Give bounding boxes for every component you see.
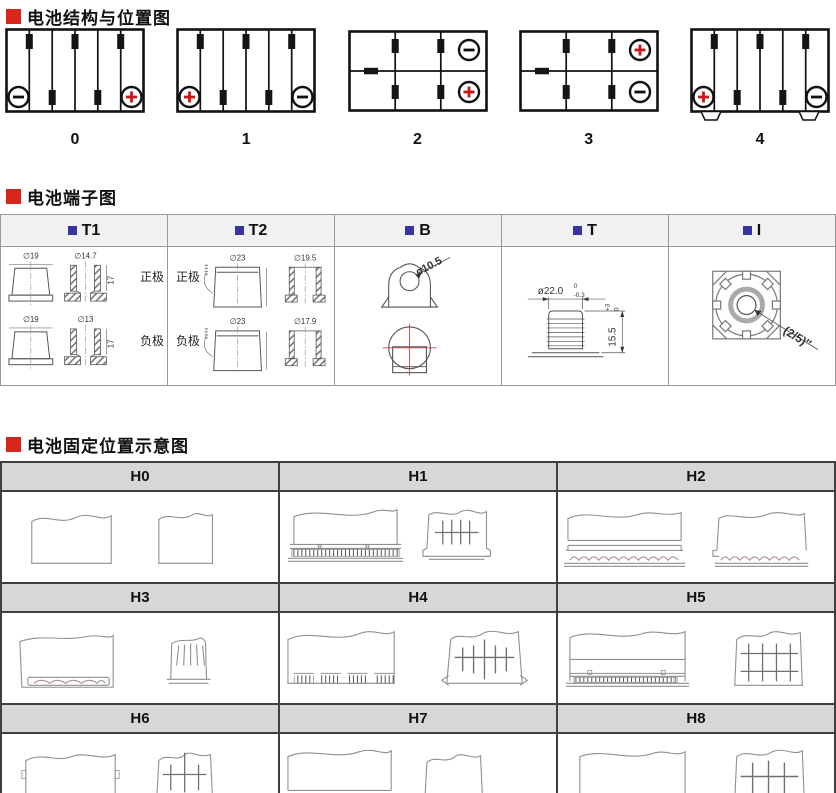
dim-label: 17 bbox=[106, 339, 115, 348]
terminal-col-header-t2: T2 bbox=[168, 215, 335, 247]
terminal-cell-i: (2/5)″ bbox=[669, 247, 836, 386]
terminal-table: T1 T2 B T I ∅19 ∅14.7 17 正极 ∅19 ∅13 17 负… bbox=[0, 214, 836, 386]
diagram-label-0: 0 bbox=[71, 131, 80, 149]
holddown-header-h2: H2 bbox=[557, 462, 835, 491]
battery-spec-sheet: 电池结构与位置图 0 1 2 3 bbox=[0, 0, 836, 793]
holddown-drawing-h8 bbox=[558, 734, 834, 793]
dim-label: ∅13 bbox=[78, 315, 94, 324]
holddown-title-text: 电池固定位置示意图 bbox=[27, 432, 189, 457]
holddown-content-row bbox=[1, 491, 835, 583]
section-title-terminals: 电池端子图 bbox=[6, 184, 117, 209]
battery-structure-row: 0 1 2 3 4 bbox=[0, 28, 836, 149]
navy-square-bullet-icon bbox=[405, 226, 414, 235]
dim-tol-label: 0 bbox=[613, 307, 620, 311]
terminal-drawing-t2: 正极 ∅23 ∅19.5 负极 ∅23 ∅17.9 bbox=[168, 247, 334, 380]
battery-diagram-3: 3 bbox=[519, 28, 659, 149]
holddown-cell-h3 bbox=[1, 612, 279, 704]
holddown-drawing-h7 bbox=[280, 734, 556, 793]
dim-label: ∅19.5 bbox=[294, 253, 317, 262]
red-square-bullet-icon bbox=[6, 189, 21, 204]
battery-structure-3-drawing bbox=[519, 28, 659, 122]
navy-square-bullet-icon bbox=[743, 226, 752, 235]
holddown-cell-h1 bbox=[279, 491, 557, 583]
dim-tol-label: -0.3 bbox=[574, 292, 586, 299]
positive-pole-label: 正极 bbox=[140, 270, 164, 284]
navy-square-bullet-icon bbox=[573, 226, 582, 235]
diagram-label-2: 2 bbox=[413, 131, 422, 149]
t2-label: T2 bbox=[249, 222, 268, 239]
diagram-label-3: 3 bbox=[584, 131, 593, 149]
terminal-drawing-b: ø10.5 bbox=[335, 247, 501, 380]
holddown-drawing-h1 bbox=[280, 492, 556, 577]
holddown-content-row bbox=[1, 733, 835, 793]
section-title-holddown: 电池固定位置示意图 bbox=[6, 432, 189, 457]
holddown-drawing-h4 bbox=[280, 613, 556, 698]
structure-title-text: 电池结构与位置图 bbox=[27, 4, 171, 29]
negative-pole-label: 负极 bbox=[176, 334, 200, 348]
holddown-content-row bbox=[1, 612, 835, 704]
navy-square-bullet-icon bbox=[235, 226, 244, 235]
terminals-title-text: 电池端子图 bbox=[27, 184, 117, 209]
battery-structure-2-drawing bbox=[348, 28, 488, 122]
section-title-structure: 电池结构与位置图 bbox=[6, 4, 171, 29]
terminal-col-header-t: T bbox=[502, 215, 669, 247]
battery-diagram-1: 1 bbox=[176, 28, 316, 149]
t-label: T bbox=[587, 222, 597, 239]
dim-label: ø22.0 bbox=[538, 286, 564, 297]
dim-label: 15.5 bbox=[607, 327, 618, 347]
battery-structure-1-drawing bbox=[176, 28, 316, 122]
terminal-cell-t2: 正极 ∅23 ∅19.5 负极 ∅23 ∅17.9 bbox=[168, 247, 335, 386]
dim-tol-label: 0 bbox=[574, 283, 578, 290]
holddown-header-row: H3 H4 H5 bbox=[1, 583, 835, 612]
holddown-cell-h5 bbox=[557, 612, 835, 704]
holddown-cell-h2 bbox=[557, 491, 835, 583]
holddown-header-row: H6 H7 H8 bbox=[1, 704, 835, 733]
diagram-label-4: 4 bbox=[756, 131, 765, 149]
battery-structure-0-drawing bbox=[5, 28, 145, 122]
terminal-drawing-t1: ∅19 ∅14.7 17 正极 ∅19 ∅13 17 负极 bbox=[1, 247, 167, 380]
holddown-header-h4: H4 bbox=[279, 583, 557, 612]
terminal-col-header-b: B bbox=[335, 215, 502, 247]
holddown-header-h0: H0 bbox=[1, 462, 279, 491]
holddown-cell-h0 bbox=[1, 491, 279, 583]
battery-diagram-2: 2 bbox=[348, 28, 488, 149]
terminal-col-header-i: I bbox=[669, 215, 836, 247]
holddown-header-h5: H5 bbox=[557, 583, 835, 612]
dim-label: ∅14.7 bbox=[74, 251, 97, 260]
battery-structure-4-drawing bbox=[690, 28, 830, 122]
battery-diagram-0: 0 bbox=[5, 28, 145, 149]
positive-pole-label: 正极 bbox=[176, 270, 200, 284]
holddown-cell-h4 bbox=[279, 612, 557, 704]
holddown-drawing-h5 bbox=[558, 613, 834, 698]
holddown-drawing-h3 bbox=[2, 613, 278, 698]
holddown-header-h3: H3 bbox=[1, 583, 279, 612]
holddown-header-h8: H8 bbox=[557, 704, 835, 733]
dim-label: ∅23 bbox=[230, 253, 246, 262]
b-label: B bbox=[419, 222, 431, 239]
terminal-col-header-t1: T1 bbox=[1, 215, 168, 247]
i-label: I bbox=[757, 222, 761, 239]
negative-pole-label: 负极 bbox=[140, 334, 164, 348]
dim-tol-label: +3 bbox=[604, 303, 611, 311]
diagram-label-1: 1 bbox=[242, 131, 251, 149]
dim-label: ∅19 bbox=[23, 251, 39, 260]
dim-label: ∅19 bbox=[23, 315, 39, 324]
holddown-header-h7: H7 bbox=[279, 704, 557, 733]
terminal-drawing-i: (2/5)″ bbox=[669, 247, 835, 380]
dim-label: 17 bbox=[106, 275, 115, 284]
terminal-cell-b: ø10.5 bbox=[335, 247, 502, 386]
terminal-drawing-t: ø22.0 0 -0.3 15.5 +3 0 bbox=[502, 247, 668, 380]
holddown-header-row: H0 H1 H2 bbox=[1, 462, 835, 491]
holddown-header-h1: H1 bbox=[279, 462, 557, 491]
holddown-cell-h8 bbox=[557, 733, 835, 793]
dim-label: (2/5)″ bbox=[781, 323, 814, 351]
dim-label: ∅23 bbox=[230, 317, 246, 326]
red-square-bullet-icon bbox=[6, 437, 21, 452]
terminal-header-row: T1 T2 B T I bbox=[1, 215, 836, 247]
t1-label: T1 bbox=[82, 222, 101, 239]
dim-label: ∅17.9 bbox=[294, 317, 317, 326]
holddown-header-h6: H6 bbox=[1, 704, 279, 733]
holddown-drawing-h6 bbox=[2, 734, 278, 793]
holddown-cell-h6 bbox=[1, 733, 279, 793]
terminal-body-row: ∅19 ∅14.7 17 正极 ∅19 ∅13 17 负极 正极 ∅23 ∅19… bbox=[1, 247, 836, 386]
navy-square-bullet-icon bbox=[68, 226, 77, 235]
dim-label: ø10.5 bbox=[414, 255, 444, 279]
holddown-drawing-h2 bbox=[558, 492, 834, 577]
terminal-cell-t1: ∅19 ∅14.7 17 正极 ∅19 ∅13 17 负极 bbox=[1, 247, 168, 386]
battery-diagram-4: 4 bbox=[690, 28, 830, 149]
holddown-table: H0 H1 H2 bbox=[0, 461, 836, 793]
terminal-cell-t: ø22.0 0 -0.3 15.5 +3 0 bbox=[502, 247, 669, 386]
red-square-bullet-icon bbox=[6, 9, 21, 24]
holddown-drawing-h0 bbox=[2, 492, 278, 577]
holddown-cell-h7 bbox=[279, 733, 557, 793]
